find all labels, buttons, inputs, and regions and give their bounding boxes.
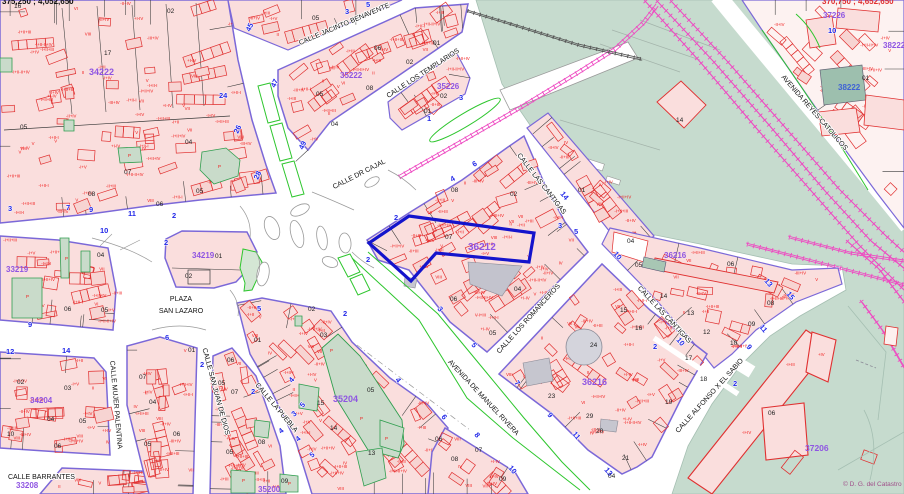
svg-text:04: 04 (149, 399, 157, 406)
svg-text:-II+IV: -II+IV (774, 22, 785, 27)
svg-text:13: 13 (687, 310, 695, 317)
svg-text:-III+IV: -III+IV (795, 271, 807, 276)
svg-text:-I+II-I: -I+II-I (283, 370, 293, 375)
svg-text:-II+III: -II+III (435, 198, 445, 203)
svg-text:14: 14 (330, 425, 338, 432)
svg-text:36216: 36216 (664, 251, 687, 260)
svg-text:PLAZA: PLAZA (170, 296, 193, 303)
svg-text:-I+III: -I+III (613, 287, 622, 292)
svg-text:-I+II-I: -I+II-I (126, 98, 136, 103)
svg-text:01: 01 (254, 337, 262, 344)
svg-text:-III+IV: -III+IV (581, 319, 593, 324)
svg-text:VIII: VIII (506, 372, 512, 377)
svg-text:03: 03 (320, 332, 328, 339)
svg-text:06: 06 (374, 45, 382, 52)
svg-text:-I+II-I: -I+II-I (627, 309, 637, 314)
svg-text:-III+IV: -III+IV (418, 401, 430, 406)
svg-text:II: II (82, 70, 84, 75)
svg-text:-I+II: -I+II (702, 309, 710, 314)
svg-text:-I+II-II+IV: -I+II-II+IV (624, 420, 642, 425)
svg-text:VI: VI (428, 210, 432, 215)
svg-text:CALLE BARRANTES: CALLE BARRANTES (8, 474, 75, 481)
svg-text:VII: VII (569, 237, 574, 242)
svg-text:P: P (26, 294, 29, 299)
svg-text:V: V (314, 377, 317, 382)
svg-text:VIII: VIII (191, 73, 197, 78)
svg-text:04: 04 (185, 139, 193, 146)
svg-text:VI: VI (581, 400, 585, 405)
svg-text:02: 02 (510, 191, 518, 198)
svg-text:23: 23 (548, 393, 556, 400)
svg-text:05: 05 (635, 262, 643, 269)
svg-text:II: II (541, 336, 543, 341)
svg-text:IV: IV (458, 464, 462, 469)
svg-text:-I+II: -I+II (263, 479, 271, 484)
svg-text:02: 02 (17, 379, 25, 386)
svg-text:-II+IV: -II+IV (160, 422, 171, 427)
svg-text:-II+IV: -II+IV (625, 218, 636, 223)
svg-text:+I-IV: +I-IV (521, 296, 530, 301)
svg-text:-I+II+IV: -I+II+IV (330, 471, 344, 476)
svg-text:-III+IV: -III+IV (240, 141, 252, 146)
svg-text:2: 2 (394, 213, 398, 222)
svg-text:04: 04 (514, 286, 522, 293)
svg-text:07: 07 (231, 389, 239, 396)
svg-text:-I+II+IV: -I+II+IV (171, 133, 185, 138)
svg-text:-II+IV: -II+IV (99, 17, 110, 22)
svg-text:-I+II-I: -I+II-I (39, 183, 49, 188)
svg-text:-I+II-I: -I+II-I (147, 83, 157, 88)
svg-text:-II+IV: -II+IV (321, 319, 332, 324)
svg-text:-II+IV: -II+IV (615, 407, 626, 412)
svg-text:V: V (32, 141, 35, 146)
svg-text:V: V (184, 348, 187, 353)
svg-text:35200: 35200 (258, 485, 281, 494)
svg-text:VI: VI (268, 443, 272, 448)
svg-text:-I+III: -I+III (397, 459, 406, 464)
svg-text:-I+II-I: -I+II-I (488, 315, 498, 320)
svg-text:24: 24 (219, 91, 228, 100)
svg-text:-I+IV: -I+IV (881, 35, 890, 40)
svg-text:34222: 34222 (89, 67, 114, 77)
svg-text:07: 07 (475, 447, 483, 454)
svg-text:04: 04 (331, 121, 339, 128)
svg-text:V: V (815, 277, 818, 282)
svg-text:-I+V: -I+V (657, 357, 665, 362)
svg-text:-I+II+III: -I+II+III (215, 119, 229, 124)
svg-text:-III+IV: -III+IV (108, 100, 120, 105)
svg-text:35222: 35222 (340, 71, 363, 80)
svg-text:-I+II+IV: -I+II+IV (146, 156, 160, 161)
svg-text:08: 08 (451, 187, 459, 194)
svg-text:+I-IV: +I-IV (489, 474, 498, 479)
svg-text:12: 12 (6, 347, 14, 356)
svg-text:II: II (293, 387, 295, 392)
svg-text:-III+IV: -III+IV (147, 36, 159, 41)
svg-text:07: 07 (124, 169, 132, 176)
svg-text:-II+IV: -II+IV (159, 467, 170, 472)
svg-text:-I+II-I: -I+II-I (624, 342, 634, 347)
svg-text:-I+III: -I+III (220, 477, 229, 482)
svg-text:-I+II+III: -I+II+III (322, 108, 336, 113)
svg-text:-III+IV: -III+IV (20, 432, 32, 437)
svg-text:P: P (218, 164, 221, 169)
svg-text:-I+II+III: -I+II+III (61, 87, 75, 92)
svg-text:-I+II+IV: -I+II+IV (308, 327, 322, 332)
svg-text:-I+V: -I+V (647, 392, 655, 397)
svg-text:11: 11 (128, 209, 136, 218)
svg-text:05: 05 (367, 387, 375, 394)
svg-text:01: 01 (215, 253, 223, 260)
svg-text:VI: VI (575, 325, 579, 330)
svg-text:-I+III: -I+III (287, 96, 296, 101)
svg-text:-I+IV: -I+IV (604, 179, 613, 184)
svg-text:-II+IV: -II+IV (548, 145, 559, 150)
svg-text:VII: VII (188, 468, 193, 473)
svg-text:-I+IV: -I+IV (539, 267, 548, 272)
svg-text:16: 16 (14, 3, 22, 10)
svg-text:06: 06 (173, 431, 181, 438)
svg-text:-II+III: -II+III (106, 184, 116, 189)
svg-text:VII: VII (317, 349, 322, 354)
svg-text:9: 9 (28, 320, 32, 329)
svg-text:-I+III: -I+III (372, 58, 381, 63)
svg-text:-I+II-I: -I+II-I (73, 300, 83, 305)
svg-text:-II+IV: -II+IV (250, 16, 261, 21)
svg-text:-II+III: -II+III (411, 233, 421, 238)
svg-text:1: 1 (427, 114, 431, 123)
svg-text:-III+IV: -III+IV (492, 213, 504, 218)
svg-text:+I-IV: +I-IV (21, 145, 30, 150)
svg-text:21: 21 (622, 455, 630, 462)
svg-text:VII: VII (518, 214, 523, 219)
svg-text:+I-IV: +I-IV (226, 436, 235, 441)
svg-text:-I+IV: -I+IV (425, 238, 434, 243)
svg-text:-II+III: -II+III (112, 291, 122, 296)
svg-text:VIII: VIII (491, 235, 497, 240)
svg-text:VII: VII (187, 128, 192, 133)
svg-text:06: 06 (727, 261, 735, 268)
svg-text:35204: 35204 (333, 394, 358, 404)
svg-text:-I+II: -I+II (172, 120, 180, 125)
svg-text:-I+II+IV: -I+II+IV (617, 195, 631, 200)
svg-text:-I+IV: -I+IV (638, 442, 647, 447)
svg-text:-I+II+III: -I+II+III (390, 37, 404, 42)
svg-text:VIII: VIII (337, 486, 343, 491)
svg-text:VII: VII (185, 106, 190, 111)
svg-text:05: 05 (20, 124, 28, 131)
svg-text:-II+III: -II+III (593, 323, 603, 328)
svg-text:-I+II-I: -I+II-I (300, 430, 310, 435)
svg-text:05: 05 (489, 330, 497, 337)
svg-text:-I+II: -I+II (431, 91, 439, 96)
svg-text:01: 01 (188, 347, 196, 354)
svg-text:VIII: VIII (308, 344, 314, 349)
svg-text:04: 04 (47, 416, 55, 423)
svg-text:24: 24 (590, 342, 598, 349)
svg-text:-II+IV: -II+IV (19, 409, 30, 414)
svg-text:V: V (319, 418, 322, 423)
svg-text:VI: VI (94, 301, 98, 306)
svg-text:-I+V: -I+V (27, 250, 35, 255)
svg-text:3: 3 (345, 7, 349, 16)
svg-text:16: 16 (635, 325, 643, 332)
svg-text:05: 05 (196, 188, 204, 195)
svg-text:P: P (128, 153, 131, 158)
svg-text:-I+II: -I+II (76, 358, 84, 363)
svg-text:01: 01 (578, 187, 586, 194)
svg-text:-I+V: -I+V (269, 16, 277, 21)
svg-text:IV: IV (559, 261, 563, 266)
svg-text:SAN LAZARO: SAN LAZARO (159, 308, 204, 315)
svg-text:-I+II+III: -I+II+III (39, 97, 53, 102)
svg-text:-I+II-II+IV: -I+II-II+IV (422, 21, 440, 26)
svg-text:VIII: VIII (454, 436, 460, 441)
svg-text:-I+II-II+IV: -I+II-II+IV (860, 43, 878, 48)
svg-text:36216: 36216 (582, 377, 607, 387)
svg-text:-I+III: -I+III (418, 425, 427, 430)
svg-text:+I-IV: +I-IV (491, 459, 500, 464)
svg-text:-I+IV: -I+IV (135, 112, 144, 117)
svg-text:+I-IV: +I-IV (219, 387, 228, 392)
svg-text:2: 2 (251, 387, 255, 396)
svg-text:5: 5 (574, 227, 578, 236)
svg-text:05: 05 (79, 418, 87, 425)
svg-text:II: II (683, 310, 685, 315)
svg-text:-I+II+III: -I+II+III (21, 201, 35, 206)
svg-text:-I+II+III: -I+II+III (166, 451, 180, 456)
svg-text:-I+II+IV: -I+II+IV (868, 67, 882, 72)
svg-text:VIII: VIII (139, 428, 145, 433)
svg-text:12: 12 (703, 329, 711, 336)
svg-text:-I+III: -I+III (525, 219, 534, 224)
svg-text:© D. G. del Catastro: © D. G. del Catastro (843, 480, 902, 488)
svg-text:-I+II-I: -I+II-I (41, 261, 51, 266)
svg-text:V: V (75, 197, 78, 202)
svg-text:06: 06 (64, 306, 72, 313)
svg-text:-I+II+III: -I+II+III (635, 399, 649, 404)
svg-text:05: 05 (312, 15, 320, 22)
svg-text:-II+III: -II+III (560, 155, 570, 160)
svg-text:-III+IV: -III+IV (169, 438, 181, 443)
svg-text:-I+II: -I+II (247, 312, 255, 317)
svg-text:+I-IV: +I-IV (307, 372, 316, 377)
svg-text:2: 2 (343, 309, 347, 318)
svg-text:+I-IV: +I-IV (163, 103, 172, 108)
svg-text:IV: IV (106, 440, 110, 445)
svg-text:09: 09 (748, 321, 756, 328)
svg-text:-II+III: -II+III (430, 102, 440, 107)
svg-text:06: 06 (450, 296, 458, 303)
svg-text:2: 2 (200, 360, 204, 369)
svg-text:-I+II+III: -I+II+III (231, 465, 245, 470)
svg-text:01: 01 (862, 75, 870, 82)
svg-text:-I+II+IV: -I+II+IV (92, 293, 106, 298)
svg-text:375,250 ; 4,052,650: 375,250 ; 4,052,650 (2, 0, 74, 6)
svg-text:II: II (92, 385, 94, 390)
svg-text:-I+II+IV: -I+II+IV (390, 244, 404, 249)
svg-text:V: V (451, 198, 454, 203)
svg-text:V: V (475, 312, 478, 317)
svg-text:14: 14 (62, 346, 71, 355)
svg-text:33219: 33219 (6, 265, 29, 274)
svg-text:35226: 35226 (437, 82, 460, 91)
svg-text:-I+IV: -I+IV (299, 331, 308, 336)
svg-text:IV: IV (564, 140, 568, 145)
svg-text:-I+IV: -I+IV (83, 411, 92, 416)
svg-text:-I+II-I: -I+II-I (14, 210, 24, 215)
svg-text:VI: VI (341, 80, 345, 85)
svg-text:10: 10 (7, 431, 15, 438)
svg-text:-I+III: -I+III (786, 362, 795, 367)
svg-text:V: V (337, 84, 340, 89)
svg-text:05: 05 (226, 449, 234, 456)
svg-text:VII: VII (236, 361, 241, 366)
svg-text:-II+III: -II+III (409, 248, 419, 253)
svg-text:+I-IV: +I-IV (102, 428, 111, 433)
svg-text:-I+II: -I+II (456, 229, 464, 234)
svg-text:P: P (385, 436, 388, 441)
svg-text:-I+V: -I+V (310, 136, 318, 141)
svg-text:9: 9 (89, 205, 93, 214)
svg-text:VIII: VIII (156, 416, 162, 421)
svg-text:09: 09 (281, 478, 289, 485)
svg-text:19: 19 (665, 399, 673, 406)
svg-text:II: II (587, 370, 589, 375)
svg-text:VI: VI (103, 376, 107, 381)
svg-text:-I+IV: -I+IV (50, 90, 59, 95)
svg-text:+I-IV: +I-IV (187, 58, 196, 63)
svg-text:37226: 37226 (823, 11, 846, 20)
svg-text:-I+II-II+IV: -I+II-II+IV (98, 319, 116, 324)
svg-text:IV: IV (142, 146, 146, 151)
svg-text:3: 3 (558, 221, 562, 230)
svg-text:10: 10 (828, 26, 836, 35)
svg-text:02: 02 (185, 273, 193, 280)
svg-text:02: 02 (308, 306, 316, 313)
svg-text:15: 15 (620, 307, 628, 314)
svg-text:-I+II-II+IV: -I+II-II+IV (475, 295, 493, 300)
svg-text:VII: VII (423, 47, 428, 52)
svg-text:VIII: VIII (596, 201, 602, 206)
svg-text:15: 15 (317, 400, 325, 407)
svg-text:05: 05 (316, 91, 324, 98)
svg-text:VII: VII (673, 275, 678, 280)
svg-text:370,750 ; 4,652,650: 370,750 ; 4,652,650 (822, 0, 894, 6)
svg-text:-I+II-II+IV: -I+II-II+IV (529, 277, 547, 282)
svg-text:-I+II-I: -I+II-I (183, 392, 193, 397)
svg-text:II: II (145, 390, 147, 395)
svg-text:06: 06 (768, 410, 776, 417)
svg-text:17: 17 (685, 355, 693, 362)
svg-text:-I+II+III: -I+II+III (135, 411, 149, 416)
svg-text:03: 03 (64, 385, 72, 392)
svg-text:VIII: VIII (465, 483, 471, 488)
svg-text:VII: VII (483, 484, 488, 489)
svg-text:08: 08 (366, 85, 374, 92)
svg-text:VII: VII (567, 321, 572, 326)
svg-text:-II+IV: -II+IV (120, 1, 131, 6)
svg-text:-II+III: -II+III (438, 209, 448, 214)
svg-text:VII: VII (509, 219, 514, 224)
svg-text:V: V (534, 291, 537, 296)
svg-text:34219: 34219 (192, 251, 215, 260)
svg-text:II: II (372, 71, 374, 76)
svg-text:-I+II-I: -I+II-I (49, 135, 59, 140)
svg-text:02: 02 (440, 93, 448, 100)
svg-text:01: 01 (424, 108, 432, 115)
svg-text:-I+II+IV: -I+II+IV (591, 394, 605, 399)
svg-text:-I+V: -I+V (303, 419, 311, 424)
svg-text:04: 04 (608, 473, 616, 480)
svg-text:29: 29 (586, 413, 594, 420)
svg-text:14: 14 (676, 117, 684, 124)
svg-text:06: 06 (227, 357, 235, 364)
svg-text:10: 10 (100, 226, 108, 235)
svg-text:IV: IV (599, 183, 603, 188)
svg-text:37206: 37206 (805, 443, 829, 453)
svg-text:V: V (135, 130, 138, 135)
svg-text:-II+IV: -II+IV (696, 291, 707, 296)
svg-text:II: II (58, 484, 60, 489)
svg-text:-I+II+IV: -I+II+IV (139, 89, 153, 94)
svg-text:-I+II+IV: -I+II+IV (69, 439, 83, 444)
svg-text:06: 06 (54, 443, 62, 450)
svg-text:-III+IV: -III+IV (472, 178, 484, 183)
svg-text:36212: 36212 (468, 242, 496, 253)
svg-text:-I+II: -I+II (517, 223, 525, 228)
svg-text:13: 13 (368, 450, 376, 457)
svg-text:-I+III: -I+III (346, 49, 355, 54)
svg-text:05: 05 (144, 441, 152, 448)
svg-text:07: 07 (445, 234, 453, 241)
svg-text:IV: IV (134, 404, 138, 409)
svg-text:-I+II+IV: -I+II+IV (41, 277, 55, 282)
svg-text:38222: 38222 (838, 83, 861, 92)
svg-text:-I+IV: -I+IV (30, 49, 39, 54)
svg-text:06: 06 (156, 201, 164, 208)
svg-text:VIII: VIII (77, 434, 83, 439)
svg-text:-II+III: -II+III (7, 426, 17, 431)
svg-text:+IV: +IV (818, 352, 825, 357)
svg-text:-I+II+III: -I+II+III (691, 250, 705, 255)
svg-text:-I+III: -I+III (477, 312, 486, 317)
svg-text:-I+II+IV: -I+II+IV (321, 445, 335, 450)
svg-text:II: II (277, 32, 279, 37)
svg-text:-I+III: -I+III (261, 11, 270, 16)
svg-text:VIII: VIII (85, 31, 91, 36)
svg-text:-I+III: -I+III (436, 10, 445, 15)
svg-text:IV: IV (343, 461, 347, 466)
svg-text:38222: 38222 (883, 41, 904, 50)
svg-text:14: 14 (660, 293, 668, 300)
svg-text:-I+II+III: -I+II+III (18, 30, 32, 35)
svg-text:-I+V: -I+V (79, 165, 87, 170)
svg-text:2: 2 (733, 379, 737, 388)
svg-text:-I+IV: -I+IV (206, 113, 215, 118)
svg-text:04: 04 (97, 252, 105, 259)
svg-text:6: 6 (165, 333, 169, 342)
svg-text:-I+II+III: -I+II+III (40, 47, 54, 52)
svg-text:-I+II-II+IV: -I+II-II+IV (35, 42, 53, 47)
svg-text:VII: VII (99, 267, 104, 272)
svg-text:05: 05 (101, 307, 109, 314)
svg-text:7: 7 (66, 203, 70, 212)
svg-text:IV: IV (268, 350, 272, 355)
svg-text:P: P (65, 256, 68, 261)
svg-text:P: P (242, 478, 245, 483)
svg-text:-I+II: -I+II (631, 377, 639, 382)
